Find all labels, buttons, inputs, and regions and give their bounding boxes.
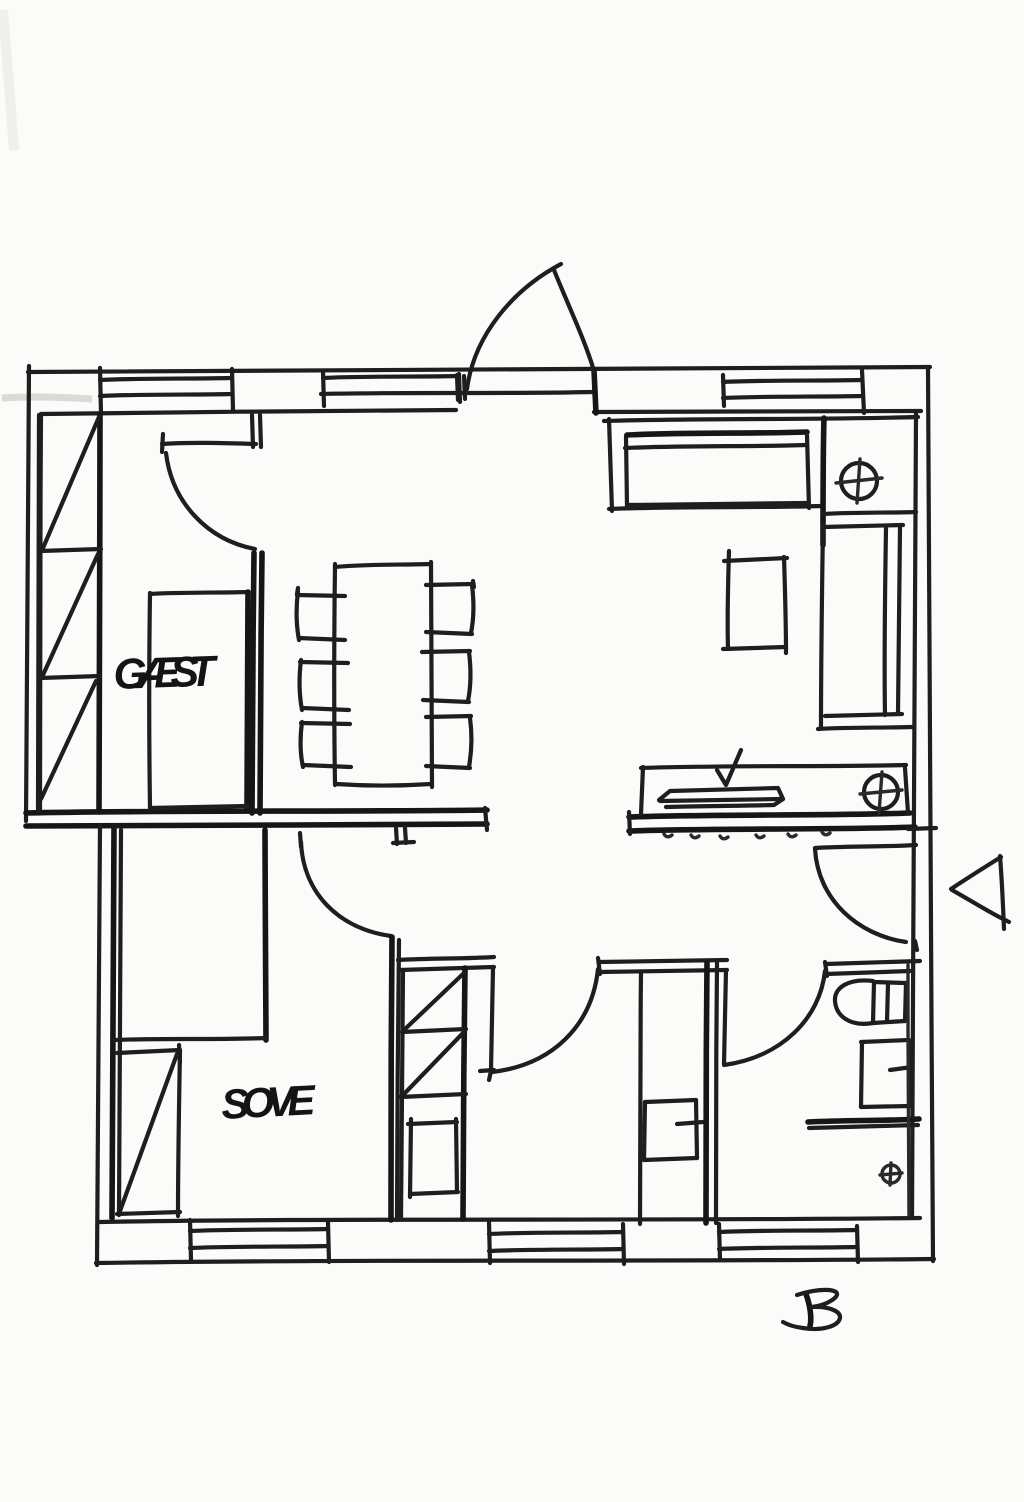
svg-text:SOVE: SOVE [220, 1076, 318, 1128]
svg-text:GÆST: GÆST [113, 647, 220, 699]
